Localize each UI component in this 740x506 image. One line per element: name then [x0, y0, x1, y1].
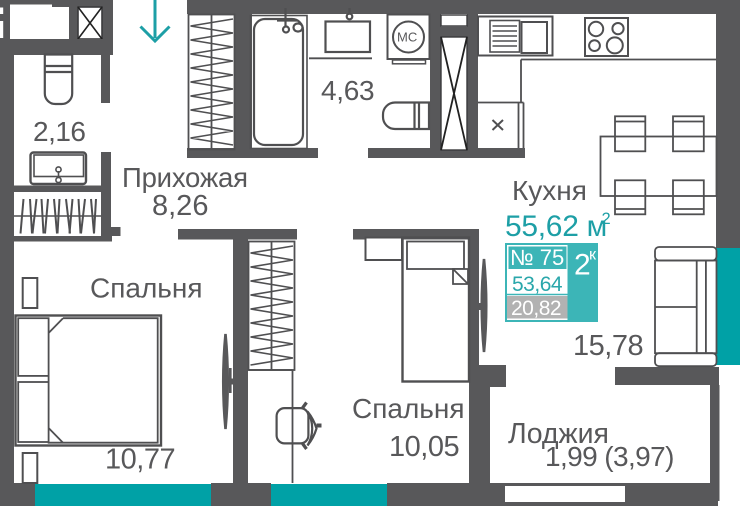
svg-text:20,82: 20,82: [511, 297, 561, 320]
svg-text:10,77: 10,77: [105, 444, 175, 476]
svg-text:4,63: 4,63: [321, 75, 374, 106]
svg-text:Прихожая: Прихожая: [122, 162, 248, 193]
svg-text:№ 75: № 75: [510, 245, 564, 270]
svg-text:Кухня: Кухня: [512, 175, 587, 206]
svg-text:2: 2: [602, 210, 611, 228]
svg-text:15,78: 15,78: [573, 330, 643, 362]
svg-text:10,05: 10,05: [389, 431, 459, 463]
svg-text:1,99 (3,97): 1,99 (3,97): [545, 441, 674, 472]
svg-text:Спальня: Спальня: [90, 273, 203, 304]
svg-text:2,16: 2,16: [33, 116, 86, 147]
svg-text:МС: МС: [397, 30, 417, 45]
svg-text:к: к: [589, 247, 597, 264]
svg-text:55,62 м: 55,62 м: [505, 210, 607, 243]
svg-text:8,26: 8,26: [152, 190, 208, 222]
svg-text:Спальня: Спальня: [352, 393, 465, 424]
svg-text:53,64: 53,64: [512, 273, 563, 296]
